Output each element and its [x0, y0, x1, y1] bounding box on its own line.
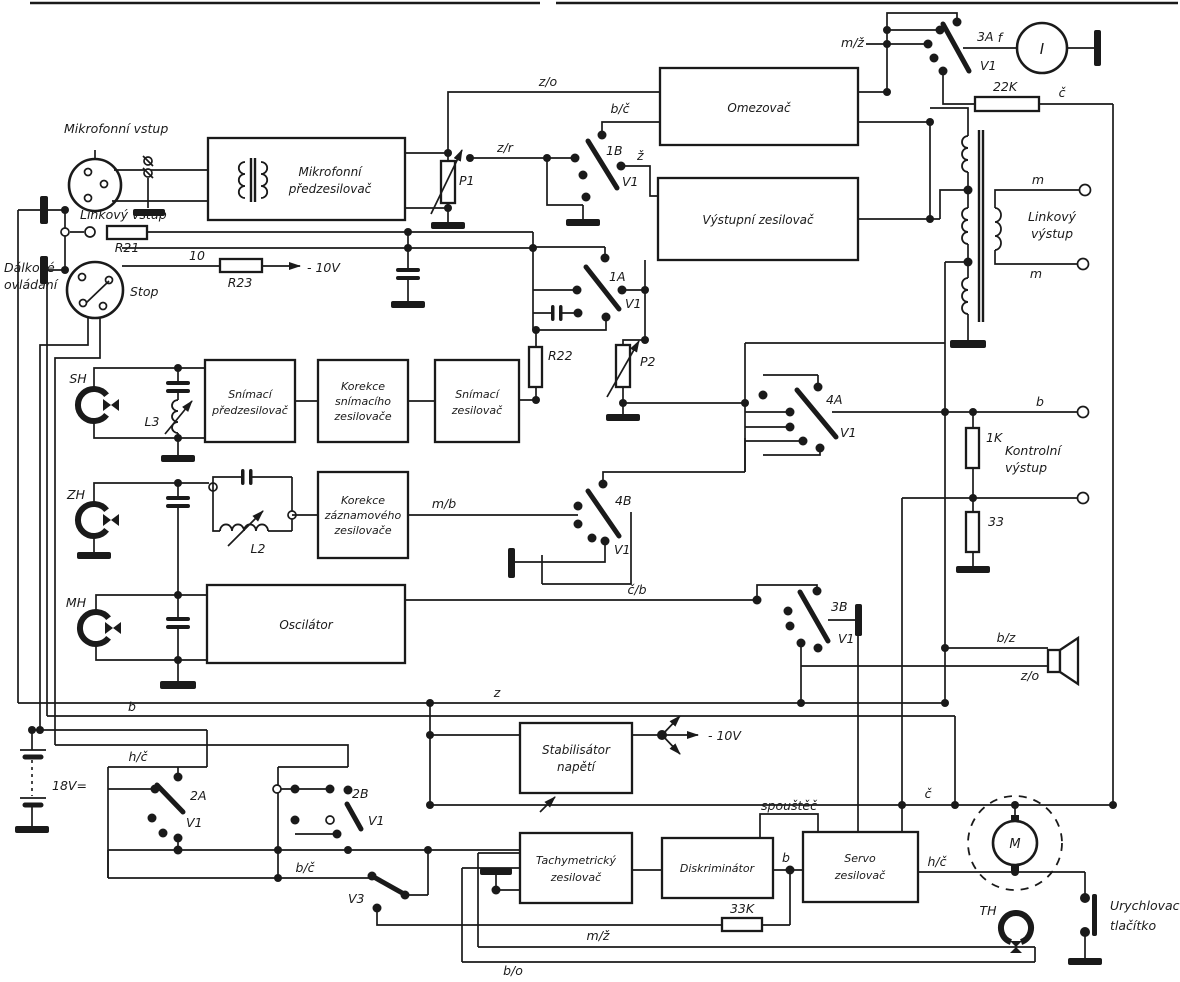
block-label: Korekce: [341, 494, 385, 507]
block-label: Stabilisátor: [542, 743, 611, 757]
l2-label: L2: [251, 541, 266, 556]
block-label: Výstupní zesilovač: [702, 213, 814, 227]
switch-2b: 2B V1: [55, 745, 385, 850]
switch-1b: b/č 1B ž V1: [543, 101, 660, 226]
potentiometer-p1: P1: [405, 149, 475, 229]
block-label: záznamového: [324, 509, 402, 522]
block-vystupni-zesilovac: Výstupní zesilovač: [658, 178, 858, 260]
r1k-label: 1K: [986, 430, 1004, 445]
block-label: předzesilovač: [288, 182, 372, 196]
wire-label-f: f: [998, 30, 1004, 45]
l3-label: L3: [145, 414, 160, 429]
head-th: TH: [979, 903, 1031, 953]
accelerator-button: Urychlovací tlačítko: [1068, 872, 1180, 965]
switch-3a-label: 3A: [977, 29, 994, 44]
r23-mult-label: 10: [189, 248, 205, 263]
switch-2a-tube: V1: [186, 815, 203, 830]
schematic-page: Mikrofonní vstup Mikrofonní předzesilova…: [0, 0, 1180, 982]
wire-label-spoustec: spouštěč: [761, 798, 818, 813]
wire-label-z: ž: [636, 148, 644, 163]
block-diskriminator: Diskriminátor: [662, 838, 773, 898]
wire-label-mz-bottom: m/ž: [587, 928, 610, 943]
switch-3b-label: 3B: [831, 599, 848, 614]
wire-bc-top: [602, 122, 660, 135]
line-output-label: výstup: [1031, 226, 1073, 241]
block-label: Mikrofonní: [298, 165, 363, 179]
switch-2a-label: 2A: [190, 788, 207, 803]
switch-1a: 1A V1: [529, 232, 645, 330]
block-snimaci-zesilovac: Snímací zesilovač: [435, 360, 519, 442]
r22k-label: 22K: [993, 79, 1019, 94]
line-out-terminal: [1078, 259, 1089, 270]
speaker-icon: [1048, 650, 1060, 672]
wire-label-c-motor: č: [925, 786, 933, 801]
switch-1a-label: 1A: [609, 269, 626, 284]
switch-2b-label: 2B: [352, 786, 369, 801]
block-label: Snímací: [455, 388, 501, 401]
block-label: zesilovač: [550, 871, 602, 884]
battery-label: 18V=: [52, 778, 87, 793]
control-output-label: Kontrolní: [1005, 443, 1062, 458]
block-oscilator: Oscilátor: [207, 585, 405, 663]
block-label: Korekce: [341, 380, 385, 393]
wire-label-b-rail: b: [128, 699, 136, 714]
motor-label: M: [1009, 837, 1020, 852]
long-rails: z b: [18, 210, 959, 809]
resistor-r22: R22: [519, 326, 573, 404]
block-label: Tachymetrický: [536, 854, 617, 867]
switch-3b: č/b 3B V1: [405, 582, 862, 703]
wire-label-zr: z/r: [496, 140, 514, 155]
minus10-stab-label: - 10V: [708, 728, 742, 743]
line-output-label: Linkový: [1028, 209, 1077, 224]
control-output-divider: 1K 33 Kontrolní výstup: [902, 412, 1089, 832]
block-servo: Servo zesilovač: [803, 832, 918, 902]
r33k-label: 33K: [730, 901, 756, 916]
head-th-label: TH: [979, 903, 997, 918]
wire-label-c: č: [1059, 85, 1067, 100]
p2-label: P2: [640, 354, 656, 369]
minus10-label: - 10V: [307, 260, 341, 275]
remote-label: ovládání: [4, 277, 59, 292]
wire-label-m: m: [1030, 266, 1042, 281]
switch-2a: h/č 2A V1: [108, 749, 207, 878]
wire-label-hc-motor: h/č: [927, 854, 947, 869]
remote-din-connector-icon: [67, 262, 123, 318]
r22-label: R22: [548, 348, 573, 363]
block-omezovac: Omezovač: [660, 68, 858, 145]
line-in-terminal: [85, 227, 95, 237]
block-label: napětí: [557, 760, 597, 774]
wire-label-zo2: z/o: [1020, 668, 1040, 683]
wire-label-mz: m/ž: [841, 35, 864, 50]
tape-recorder-block-schematic: Mikrofonní vstup Mikrofonní předzesilova…: [0, 0, 1180, 982]
head-zh-label: ZH: [66, 487, 86, 502]
block-label: předzesilovač: [211, 404, 289, 417]
motor-section: h/č M: [918, 796, 1085, 890]
mic-din-connector-icon: [69, 159, 121, 211]
block-snimaci-predzesilovac: Snímací předzesilovač: [205, 360, 295, 442]
meter-glyph: I: [1040, 40, 1045, 58]
block-label: Diskriminátor: [680, 862, 756, 875]
r33-label: 33: [988, 514, 1004, 529]
head-mh-label: MH: [66, 595, 87, 610]
block-mic-preamp: Mikrofonní předzesilovač: [208, 138, 405, 220]
block-label: snímacího: [335, 395, 391, 408]
wire-label-cb: č/b: [627, 582, 646, 597]
mic-input-label: Mikrofonní vstup: [64, 121, 168, 136]
wire-label-mb: m/b: [432, 496, 456, 511]
control-output-label: výstup: [1005, 460, 1047, 475]
output-transformer: m m Linkový výstup: [858, 108, 1091, 348]
switch-4a-tube: V1: [840, 425, 857, 440]
block-label: zesilovače: [333, 524, 391, 537]
block-label: zesilovač: [834, 869, 886, 882]
switch-4a-label: 4A: [826, 392, 843, 407]
wire-label-bo: b/o: [503, 963, 523, 978]
accel-button-label: Urychlovací: [1110, 898, 1180, 913]
accel-button-label: tlačítko: [1110, 918, 1157, 933]
wire-label-bc-v3: b/č: [295, 860, 315, 875]
line-input-label: Linkový vstup: [80, 207, 167, 222]
wire-label-bc: b/č: [610, 101, 630, 116]
block-label: zesilovače: [333, 410, 391, 423]
head-sh-label: SH: [69, 371, 87, 386]
block-label: Snímací: [228, 388, 274, 401]
switch-4b-label: 4B: [615, 493, 632, 508]
p1-label: P1: [459, 173, 475, 188]
wire-label-b-servo: b: [782, 850, 790, 865]
switch-3a-meter: m/ž 3A V1 f I: [841, 13, 1101, 96]
block-stabilisator: Stabilisátor napětí - 10V: [426, 703, 742, 805]
remote-label: Dálkové: [4, 260, 55, 275]
control-out-terminal: [1078, 407, 1089, 418]
inductor-l3-icon: [172, 400, 178, 433]
wire-label-hc: h/č: [128, 749, 148, 764]
mic-input-section: Mikrofonní vstup: [64, 121, 208, 216]
head-sh: SH L3: [69, 364, 205, 462]
r23-label: R23: [228, 275, 253, 290]
switch-1b-label: 1B: [606, 143, 623, 158]
switch-4b: m/b 4B V1: [408, 438, 745, 584]
head-zh: ZH L2: [66, 469, 318, 595]
speaker-feed-rail: [945, 262, 968, 703]
wire-label-m: m: [1032, 172, 1044, 187]
block-label: zesilovač: [451, 404, 503, 417]
stop-label: Stop: [130, 284, 158, 299]
wire-label-z-rail: z: [493, 685, 501, 700]
block-korekce-zaznamoveho: Korekce záznamového zesilovače: [318, 472, 408, 558]
block-label: Oscilátor: [279, 618, 333, 632]
switch-3a-tube: V1: [980, 58, 997, 73]
switch-4b-tube: V1: [614, 542, 631, 557]
switch-3b-tube: V1: [838, 631, 855, 646]
wire-label-zo: z/o: [538, 74, 558, 89]
block-label: Servo: [844, 852, 876, 865]
switch-1a-tube: V1: [625, 296, 642, 311]
potentiometer-p2: P2: [606, 260, 749, 421]
switch-1b-tube: V1: [622, 174, 639, 189]
switch-2b-tube: V1: [368, 813, 385, 828]
switch-v3-label: V3: [348, 891, 365, 906]
block-label: Omezovač: [727, 101, 791, 115]
control-out-terminal: [1078, 493, 1089, 504]
wire-label-b: b: [1036, 394, 1044, 409]
block-korekce-snimaciho: Korekce snímacího zesilovače: [318, 360, 408, 442]
wire-label-bz: b/z: [997, 630, 1016, 645]
line-out-terminal: [1080, 185, 1091, 196]
head-mh: MH: [66, 591, 207, 689]
